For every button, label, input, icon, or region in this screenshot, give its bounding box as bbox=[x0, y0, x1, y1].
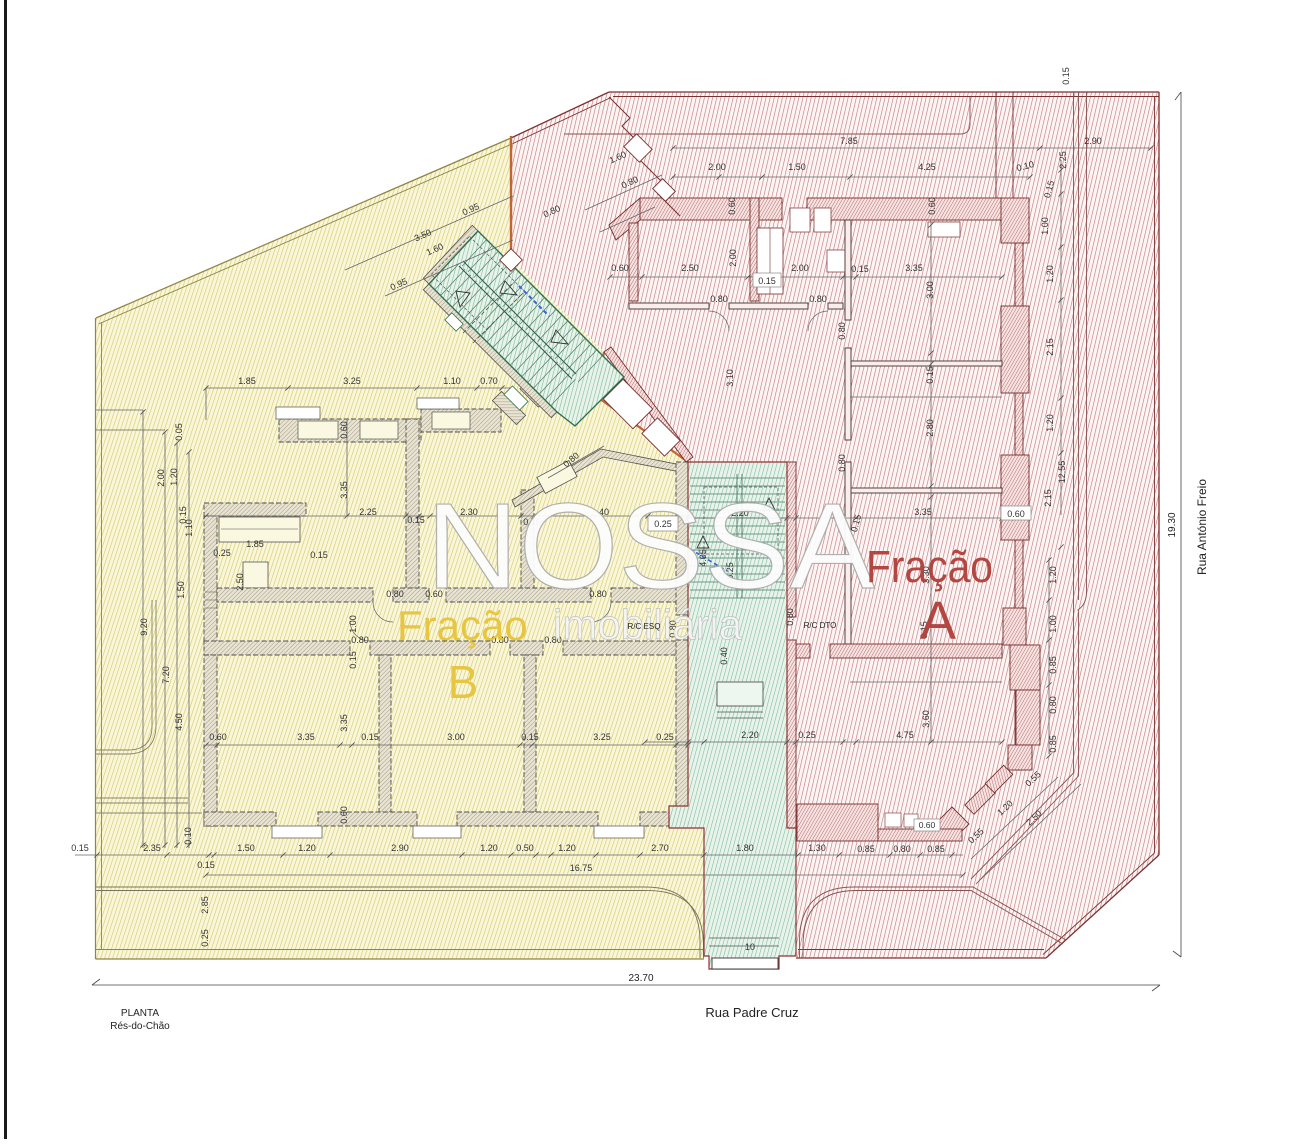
svg-text:1.10: 1.10 bbox=[443, 376, 461, 386]
svg-text:1.50: 1.50 bbox=[176, 581, 186, 599]
svg-text:3.60: 3.60 bbox=[921, 710, 931, 728]
svg-text:3.35: 3.35 bbox=[339, 714, 349, 732]
svg-text:1.30: 1.30 bbox=[808, 843, 826, 853]
svg-text:1.20: 1.20 bbox=[1045, 414, 1055, 432]
svg-text:0.85: 0.85 bbox=[1048, 656, 1058, 674]
svg-text:0.15: 0.15 bbox=[197, 860, 215, 870]
svg-text:10: 10 bbox=[745, 942, 755, 952]
svg-text:1.85: 1.85 bbox=[238, 376, 256, 386]
svg-text:0.85: 0.85 bbox=[1048, 735, 1058, 753]
svg-text:0.25: 0.25 bbox=[213, 548, 231, 558]
svg-text:0.85: 0.85 bbox=[857, 844, 875, 854]
svg-text:0.60: 0.60 bbox=[927, 197, 937, 215]
svg-text:9.20: 9.20 bbox=[139, 618, 149, 636]
svg-text:2.90: 2.90 bbox=[1084, 136, 1102, 146]
svg-text:R/C ESQ: R/C ESQ bbox=[628, 622, 661, 631]
svg-text:2.50: 2.50 bbox=[235, 573, 245, 591]
svg-text:0.80: 0.80 bbox=[710, 294, 728, 304]
svg-text:3.35: 3.35 bbox=[297, 732, 315, 742]
svg-text:0.60: 0.60 bbox=[727, 197, 737, 215]
svg-text:0.15: 0.15 bbox=[1061, 67, 1071, 85]
svg-text:3.10: 3.10 bbox=[725, 369, 735, 387]
svg-text:2.35: 2.35 bbox=[143, 843, 161, 853]
svg-text:0.50: 0.50 bbox=[516, 843, 534, 853]
svg-text:1.20: 1.20 bbox=[480, 843, 498, 853]
svg-text:1.85: 1.85 bbox=[246, 539, 264, 549]
svg-text:23.70: 23.70 bbox=[628, 973, 653, 984]
svg-text:3.00: 3.00 bbox=[447, 732, 465, 742]
svg-text:2.80: 2.80 bbox=[925, 419, 935, 437]
svg-text:2.00: 2.00 bbox=[791, 263, 809, 273]
svg-text:0.60: 0.60 bbox=[919, 820, 936, 830]
svg-text:3.00: 3.00 bbox=[925, 281, 935, 299]
svg-text:1.00: 1.00 bbox=[348, 615, 358, 633]
svg-text:2.15: 2.15 bbox=[1045, 338, 1055, 356]
svg-text:1.00: 1.00 bbox=[1040, 217, 1050, 235]
svg-text:3.35: 3.35 bbox=[339, 481, 349, 499]
svg-text:2.25: 2.25 bbox=[1058, 151, 1068, 169]
svg-text:7.20: 7.20 bbox=[161, 666, 171, 684]
svg-text:0.15: 0.15 bbox=[71, 843, 89, 853]
svg-text:0.70: 0.70 bbox=[480, 376, 498, 386]
svg-text:4.50: 4.50 bbox=[174, 713, 184, 731]
svg-text:0.15: 0.15 bbox=[851, 264, 869, 274]
svg-text:0.60: 0.60 bbox=[1007, 509, 1025, 519]
svg-text:0.15: 0.15 bbox=[361, 732, 379, 742]
svg-text:1.20: 1.20 bbox=[1045, 265, 1055, 283]
svg-text:0.80: 0.80 bbox=[809, 294, 827, 304]
svg-text:2.70: 2.70 bbox=[651, 843, 669, 853]
svg-text:1.50: 1.50 bbox=[237, 843, 255, 853]
svg-text:2.90: 2.90 bbox=[391, 843, 409, 853]
svg-text:0.80: 0.80 bbox=[837, 454, 847, 472]
svg-text:0.15: 0.15 bbox=[407, 515, 425, 525]
svg-text:1.20: 1.20 bbox=[558, 843, 576, 853]
svg-text:0.15: 0.15 bbox=[348, 651, 358, 669]
svg-text:0.25: 0.25 bbox=[200, 929, 210, 947]
svg-text:2.85: 2.85 bbox=[200, 896, 210, 914]
svg-text:Rés-do-Chão: Rés-do-Chão bbox=[110, 1021, 170, 1032]
svg-text:Fração: Fração bbox=[866, 541, 993, 592]
svg-text:3.35: 3.35 bbox=[914, 507, 932, 517]
svg-text:2.50: 2.50 bbox=[681, 263, 699, 273]
svg-text:2.00: 2.00 bbox=[708, 162, 726, 172]
svg-text:0.40: 0.40 bbox=[719, 647, 729, 665]
svg-text:4.75: 4.75 bbox=[896, 730, 914, 740]
svg-text:0.25: 0.25 bbox=[656, 732, 674, 742]
svg-text:0.15: 0.15 bbox=[310, 550, 328, 560]
svg-text:Rua Padre Cruz: Rua Padre Cruz bbox=[705, 1005, 798, 1020]
svg-text:0.15: 0.15 bbox=[925, 366, 935, 384]
svg-text:19.30: 19.30 bbox=[1167, 512, 1178, 537]
svg-text:1.00: 1.00 bbox=[1048, 615, 1058, 633]
svg-text:0.80: 0.80 bbox=[893, 844, 911, 854]
svg-text:B: B bbox=[448, 656, 479, 708]
svg-text:Rua António Freio: Rua António Freio bbox=[1195, 479, 1209, 575]
svg-text:0.15: 0.15 bbox=[758, 276, 776, 286]
svg-text:3.25: 3.25 bbox=[343, 376, 361, 386]
svg-text:NOSSA: NOSSA bbox=[426, 478, 876, 614]
svg-text:0.15: 0.15 bbox=[521, 732, 539, 742]
svg-text:16.75: 16.75 bbox=[570, 863, 593, 873]
svg-text:3.35: 3.35 bbox=[905, 263, 923, 273]
svg-text:0.60: 0.60 bbox=[209, 732, 227, 742]
svg-text:A: A bbox=[920, 591, 956, 651]
svg-text:0.80: 0.80 bbox=[386, 589, 404, 599]
svg-text:7.85: 7.85 bbox=[840, 136, 858, 146]
svg-text:0.60: 0.60 bbox=[339, 806, 349, 824]
svg-text:0.05: 0.05 bbox=[174, 423, 184, 441]
svg-text:3.25: 3.25 bbox=[593, 732, 611, 742]
svg-text:0.10: 0.10 bbox=[183, 827, 193, 845]
svg-text:1.20: 1.20 bbox=[1048, 566, 1058, 584]
svg-text:0.60: 0.60 bbox=[611, 263, 629, 273]
svg-text:1.50: 1.50 bbox=[788, 162, 806, 172]
svg-text:2.15: 2.15 bbox=[1043, 489, 1053, 507]
svg-text:1.80: 1.80 bbox=[736, 843, 754, 853]
svg-text:12.55: 12.55 bbox=[1057, 461, 1067, 484]
svg-text:2.00: 2.00 bbox=[156, 469, 166, 487]
svg-text:Fração: Fração bbox=[397, 602, 528, 649]
svg-text:2.20: 2.20 bbox=[741, 730, 759, 740]
svg-text:0.80: 0.80 bbox=[351, 635, 369, 645]
svg-text:0.25: 0.25 bbox=[798, 730, 816, 740]
svg-text:2.00: 2.00 bbox=[728, 249, 738, 267]
svg-text:PLANTA: PLANTA bbox=[121, 1008, 159, 1019]
svg-text:1.10: 1.10 bbox=[184, 519, 194, 537]
svg-text:2.25: 2.25 bbox=[359, 507, 377, 517]
svg-text:R/C DTO: R/C DTO bbox=[804, 621, 837, 630]
svg-text:0.85: 0.85 bbox=[927, 844, 945, 854]
svg-text:0.80: 0.80 bbox=[1048, 696, 1058, 714]
svg-text:1.20: 1.20 bbox=[169, 468, 179, 486]
svg-text:0.80: 0.80 bbox=[837, 322, 847, 340]
svg-text:1.20: 1.20 bbox=[298, 843, 316, 853]
svg-text:0.60: 0.60 bbox=[339, 421, 349, 439]
svg-text:4.25: 4.25 bbox=[918, 162, 936, 172]
